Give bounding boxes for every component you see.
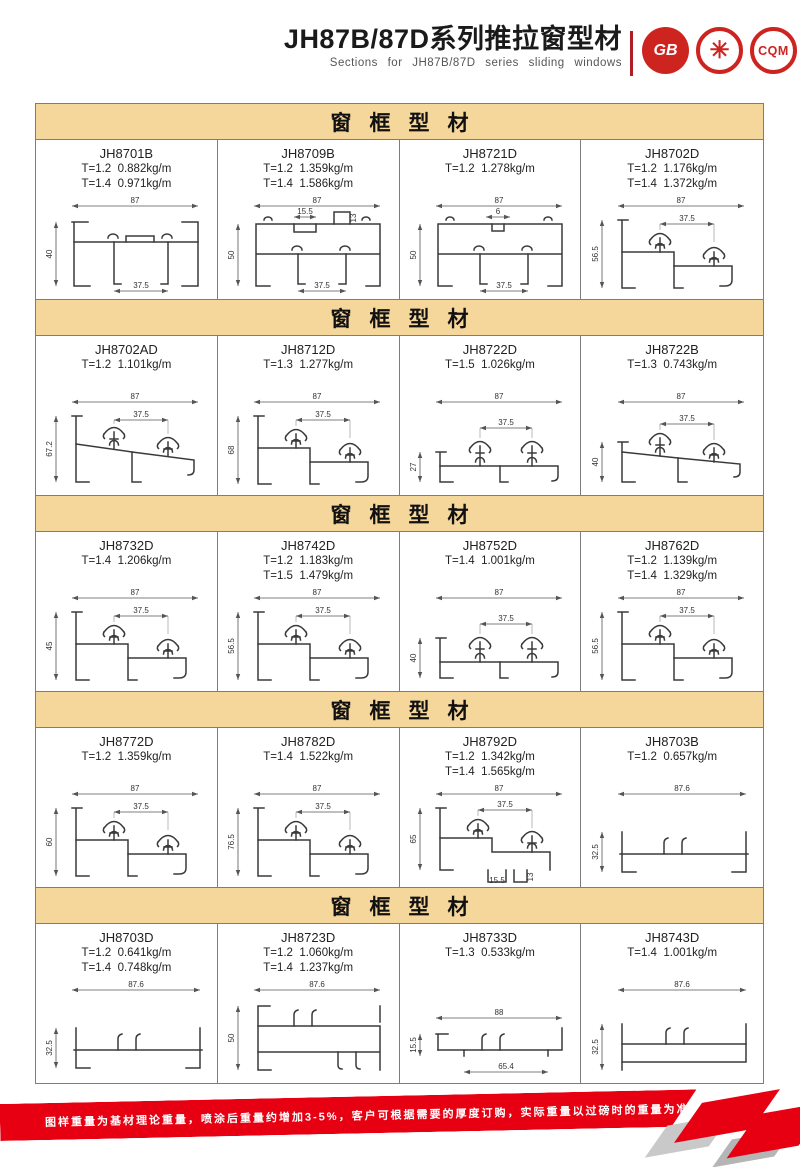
product-cell: JH8702DT=1.2 1.176kg/mT=1.4 1.372kg/m875… <box>581 140 763 299</box>
svg-text:87: 87 <box>313 588 322 597</box>
section-header: 窗框型材 <box>36 888 763 924</box>
product-code: JH8772D <box>99 734 153 750</box>
profile-drawing-JH8709B: 875037.515.513 <box>220 194 396 298</box>
svg-text:87: 87 <box>313 196 322 205</box>
svg-text:37.5: 37.5 <box>314 281 330 290</box>
svg-text:40: 40 <box>45 249 54 258</box>
svg-text:37.5: 37.5 <box>134 281 150 290</box>
svg-text:65: 65 <box>409 834 418 843</box>
product-spec: T=1.2 1.176kg/m <box>627 162 717 177</box>
profile-drawing-JH8722D: 872737.5 <box>402 390 578 494</box>
svg-text:87.6: 87.6 <box>674 784 690 793</box>
section-grid: JH8701BT=1.2 0.882kg/mT=1.4 0.971kg/m874… <box>36 140 763 299</box>
svg-text:87: 87 <box>131 196 140 205</box>
svg-text:50: 50 <box>227 250 236 259</box>
svg-text:37.5: 37.5 <box>134 802 150 811</box>
product-cell: JH8742DT=1.2 1.183kg/mT=1.5 1.479kg/m875… <box>218 532 400 691</box>
svg-text:87: 87 <box>494 196 503 205</box>
svg-text:56.5: 56.5 <box>227 638 236 654</box>
section-header: 窗框型材 <box>36 496 763 532</box>
svg-text:40: 40 <box>591 457 600 466</box>
product-code: JH8742D <box>281 538 335 554</box>
footer-band: 图样重量为基材理论重量，喷涂后重量约增加3-5%，客户可根据需要的厚度订购，实际… <box>0 1089 697 1141</box>
section-grid: JH8702ADT=1.2 1.101kg/m8767.237.5JH8712D… <box>36 336 763 495</box>
page-subtitle: Sections for JH87B/87D series sliding wi… <box>0 57 622 69</box>
svg-text:15.5: 15.5 <box>489 876 505 885</box>
profile-drawing-JH8743D: 87.632.5 <box>584 978 760 1082</box>
section-grid: JH8732DT=1.4 1.206kg/m874537.5JH8742DT=1… <box>36 532 763 691</box>
svg-text:13: 13 <box>526 872 535 881</box>
product-cell: JH8733DT=1.3 0.533kg/m8815.565.4 <box>400 924 582 1083</box>
product-cell: JH8702ADT=1.2 1.101kg/m8767.237.5 <box>36 336 218 495</box>
svg-text:45: 45 <box>45 641 54 650</box>
profile-section: 窗框型材JH8703DT=1.2 0.641kg/mT=1.4 0.748kg/… <box>36 888 763 1083</box>
product-code: JH8709B <box>281 146 334 162</box>
profile-drawing-JH8762D: 8756.537.5 <box>584 586 760 690</box>
title-block: JH87B/87D系列推拉窗型材 Sections for JH87B/87D … <box>0 24 622 69</box>
profile-drawing-JH8702AD: 8767.237.5 <box>38 390 214 494</box>
product-code: JH8701B <box>100 146 153 162</box>
svg-text:87: 87 <box>494 784 503 793</box>
product-spec: T=1.4 1.565kg/m <box>445 765 535 780</box>
svg-text:37.5: 37.5 <box>497 800 513 809</box>
svg-text:68: 68 <box>227 445 236 454</box>
product-cell: JH8722BT=1.3 0.743kg/m874037.5 <box>581 336 763 495</box>
svg-text:87.6: 87.6 <box>674 980 690 989</box>
svg-text:60: 60 <box>45 837 54 846</box>
product-cell: JH8703BT=1.2 0.657kg/m87.632.5 <box>581 728 763 887</box>
product-spec: T=1.2 1.101kg/m <box>81 358 171 373</box>
section-header: 窗框型材 <box>36 692 763 728</box>
product-code: JH8792D <box>463 734 517 750</box>
product-spec: T=1.4 1.586kg/m <box>263 177 353 192</box>
profile-drawing-JH8742D: 8756.537.5 <box>220 586 396 690</box>
svg-text:87.6: 87.6 <box>129 980 145 989</box>
svg-text:37.5: 37.5 <box>134 606 150 615</box>
section-header: 窗框型材 <box>36 300 763 336</box>
svg-text:87: 87 <box>313 392 322 401</box>
section-header: 窗框型材 <box>36 104 763 140</box>
profile-table: 窗框型材JH8701BT=1.2 0.882kg/mT=1.4 0.971kg/… <box>35 103 764 1084</box>
svg-text:37.5: 37.5 <box>679 606 695 615</box>
product-code: JH8722B <box>645 342 698 358</box>
product-cell: JH8712DT=1.3 1.277kg/m876837.5 <box>218 336 400 495</box>
svg-text:37.5: 37.5 <box>679 214 695 223</box>
product-spec: T=1.2 0.882kg/m <box>81 162 171 177</box>
product-spec: T=1.4 1.522kg/m <box>263 750 353 765</box>
product-spec: T=1.4 1.237kg/m <box>263 961 353 976</box>
product-spec: T=1.2 1.342kg/m <box>445 750 535 765</box>
profile-section: 窗框型材JH8701BT=1.2 0.882kg/mT=1.4 0.971kg/… <box>36 104 763 300</box>
product-spec: T=1.2 1.359kg/m <box>263 162 353 177</box>
product-cell: JH8722DT=1.5 1.026kg/m872737.5 <box>400 336 582 495</box>
product-code: JH8722D <box>463 342 517 358</box>
product-spec: T=1.4 0.971kg/m <box>81 177 171 192</box>
svg-text:87: 87 <box>131 588 140 597</box>
product-spec: T=1.2 1.139kg/m <box>627 554 717 569</box>
section-grid: JH8772DT=1.2 1.359kg/m876037.5JH8782DT=1… <box>36 728 763 887</box>
svg-text:37.5: 37.5 <box>315 802 331 811</box>
svg-text:87: 87 <box>131 392 140 401</box>
svg-text:76.5: 76.5 <box>227 834 236 850</box>
product-code: JH8703B <box>645 734 698 750</box>
svg-text:65.4: 65.4 <box>498 1062 514 1071</box>
svg-text:32.5: 32.5 <box>591 844 600 860</box>
svg-text:37.5: 37.5 <box>315 410 331 419</box>
certification-logo-emblem-icon: ✳ <box>696 27 743 74</box>
profile-drawing-JH8782D: 8776.537.5 <box>220 782 396 886</box>
svg-text:15.5: 15.5 <box>409 1037 418 1053</box>
product-code: JH8702D <box>645 146 699 162</box>
svg-text:87: 87 <box>494 588 503 597</box>
certification-logo-cqm-icon: CQM <box>750 27 797 74</box>
product-cell: JH8721DT=1.2 1.278kg/m875037.56 <box>400 140 582 299</box>
product-code: JH8733D <box>463 930 517 946</box>
product-cell: JH8743DT=1.4 1.001kg/m87.632.5 <box>581 924 763 1083</box>
product-cell: JH8772DT=1.2 1.359kg/m876037.5 <box>36 728 218 887</box>
svg-text:40: 40 <box>409 653 418 662</box>
product-spec: T=1.4 1.372kg/m <box>627 177 717 192</box>
product-code: JH8721D <box>463 146 517 162</box>
svg-text:27: 27 <box>409 462 418 471</box>
product-spec: T=1.4 1.001kg/m <box>627 946 717 961</box>
svg-text:50: 50 <box>409 250 418 259</box>
certification-logo-gb-icon: GB <box>642 27 689 74</box>
profile-drawing-JH8703D: 87.632.5 <box>38 978 214 1082</box>
product-spec: T=1.3 0.743kg/m <box>627 358 717 373</box>
product-spec: T=1.4 1.001kg/m <box>445 554 535 569</box>
product-cell: JH8762DT=1.2 1.139kg/mT=1.4 1.329kg/m875… <box>581 532 763 691</box>
svg-text:37.5: 37.5 <box>496 281 512 290</box>
section-grid: JH8703DT=1.2 0.641kg/mT=1.4 0.748kg/m87.… <box>36 924 763 1083</box>
svg-text:32.5: 32.5 <box>591 1039 600 1055</box>
profile-drawing-JH8702D: 8756.537.5 <box>584 194 760 298</box>
svg-text:87: 87 <box>677 392 686 401</box>
profile-section: 窗框型材JH8772DT=1.2 1.359kg/m876037.5JH8782… <box>36 692 763 888</box>
svg-text:37.5: 37.5 <box>679 414 695 423</box>
product-spec: T=1.2 1.183kg/m <box>263 554 353 569</box>
svg-text:37.5: 37.5 <box>315 606 331 615</box>
profile-drawing-JH8703B: 87.632.5 <box>584 782 760 886</box>
product-code: JH8762D <box>645 538 699 554</box>
product-code: JH8703D <box>99 930 153 946</box>
svg-text:87.6: 87.6 <box>309 980 325 989</box>
profile-section: 窗框型材JH8702ADT=1.2 1.101kg/m8767.237.5JH8… <box>36 300 763 496</box>
product-code: JH8752D <box>463 538 517 554</box>
page-title: JH87B/87D系列推拉窗型材 <box>0 24 622 55</box>
product-code: JH8732D <box>99 538 153 554</box>
svg-text:87: 87 <box>494 392 503 401</box>
svg-text:56.5: 56.5 <box>591 246 600 262</box>
certification-logos: GB✳CQM <box>642 27 797 74</box>
profile-drawing-JH8722B: 874037.5 <box>584 390 760 494</box>
svg-text:15.5: 15.5 <box>297 207 313 216</box>
product-cell: JH8752DT=1.4 1.001kg/m874037.5 <box>400 532 582 691</box>
profile-section: 窗框型材JH8732DT=1.4 1.206kg/m874537.5JH8742… <box>36 496 763 692</box>
svg-text:87: 87 <box>313 784 322 793</box>
svg-text:13: 13 <box>349 213 358 222</box>
product-spec: T=1.4 1.206kg/m <box>81 554 171 569</box>
product-spec: T=1.4 1.329kg/m <box>627 569 717 584</box>
svg-text:50: 50 <box>227 1033 236 1042</box>
svg-text:37.5: 37.5 <box>498 418 514 427</box>
svg-text:87: 87 <box>131 784 140 793</box>
product-code: JH8782D <box>281 734 335 750</box>
product-cell: JH8703DT=1.2 0.641kg/mT=1.4 0.748kg/m87.… <box>36 924 218 1083</box>
product-spec: T=1.5 1.479kg/m <box>263 569 353 584</box>
product-spec: T=1.3 0.533kg/m <box>445 946 535 961</box>
svg-text:56.5: 56.5 <box>591 638 600 654</box>
product-spec: T=1.2 1.060kg/m <box>263 946 353 961</box>
svg-text:87: 87 <box>677 588 686 597</box>
svg-text:67.2: 67.2 <box>45 441 54 457</box>
product-cell: JH8792DT=1.2 1.342kg/mT=1.4 1.565kg/m876… <box>400 728 582 887</box>
header-divider <box>630 31 633 76</box>
footer-disclaimer: 图样重量为基材理论重量，喷涂后重量约增加3-5%，客户可根据需要的厚度订购，实际… <box>0 1100 703 1131</box>
product-spec: T=1.5 1.026kg/m <box>445 358 535 373</box>
profile-drawing-JH8792D: 876537.515.513 <box>402 782 578 886</box>
product-cell: JH8723DT=1.2 1.060kg/mT=1.4 1.237kg/m87.… <box>218 924 400 1083</box>
product-spec: T=1.4 0.748kg/m <box>81 961 171 976</box>
svg-text:88: 88 <box>494 1008 503 1017</box>
product-spec: T=1.2 0.641kg/m <box>81 946 171 961</box>
profile-drawing-JH8752D: 874037.5 <box>402 586 578 690</box>
svg-text:6: 6 <box>496 207 501 216</box>
product-spec: T=1.2 0.657kg/m <box>627 750 717 765</box>
product-spec: T=1.2 1.359kg/m <box>81 750 171 765</box>
svg-text:37.5: 37.5 <box>498 614 514 623</box>
profile-drawing-JH8701B: 874037.5 <box>38 194 214 298</box>
product-cell: JH8732DT=1.4 1.206kg/m874537.5 <box>36 532 218 691</box>
product-spec: T=1.2 1.278kg/m <box>445 162 535 177</box>
svg-text:32.5: 32.5 <box>45 1040 54 1056</box>
product-code: JH8723D <box>281 930 335 946</box>
product-cell: JH8701BT=1.2 0.882kg/mT=1.4 0.971kg/m874… <box>36 140 218 299</box>
product-code: JH8712D <box>281 342 335 358</box>
product-code: JH8702AD <box>95 342 158 358</box>
profile-drawing-JH8772D: 876037.5 <box>38 782 214 886</box>
profile-drawing-JH8721D: 875037.56 <box>402 194 578 298</box>
catalog-page: JH87B/87D系列推拉窗型材 Sections for JH87B/87D … <box>0 0 800 1167</box>
product-code: JH8743D <box>645 930 699 946</box>
svg-text:87: 87 <box>677 196 686 205</box>
profile-drawing-JH8723D: 87.650 <box>220 978 396 1082</box>
profile-drawing-JH8732D: 874537.5 <box>38 586 214 690</box>
product-cell: JH8782DT=1.4 1.522kg/m8776.537.5 <box>218 728 400 887</box>
profile-drawing-JH8733D: 8815.565.4 <box>402 978 578 1082</box>
product-spec: T=1.3 1.277kg/m <box>263 358 353 373</box>
profile-drawing-JH8712D: 876837.5 <box>220 390 396 494</box>
product-cell: JH8709BT=1.2 1.359kg/mT=1.4 1.586kg/m875… <box>218 140 400 299</box>
svg-text:37.5: 37.5 <box>134 410 150 419</box>
